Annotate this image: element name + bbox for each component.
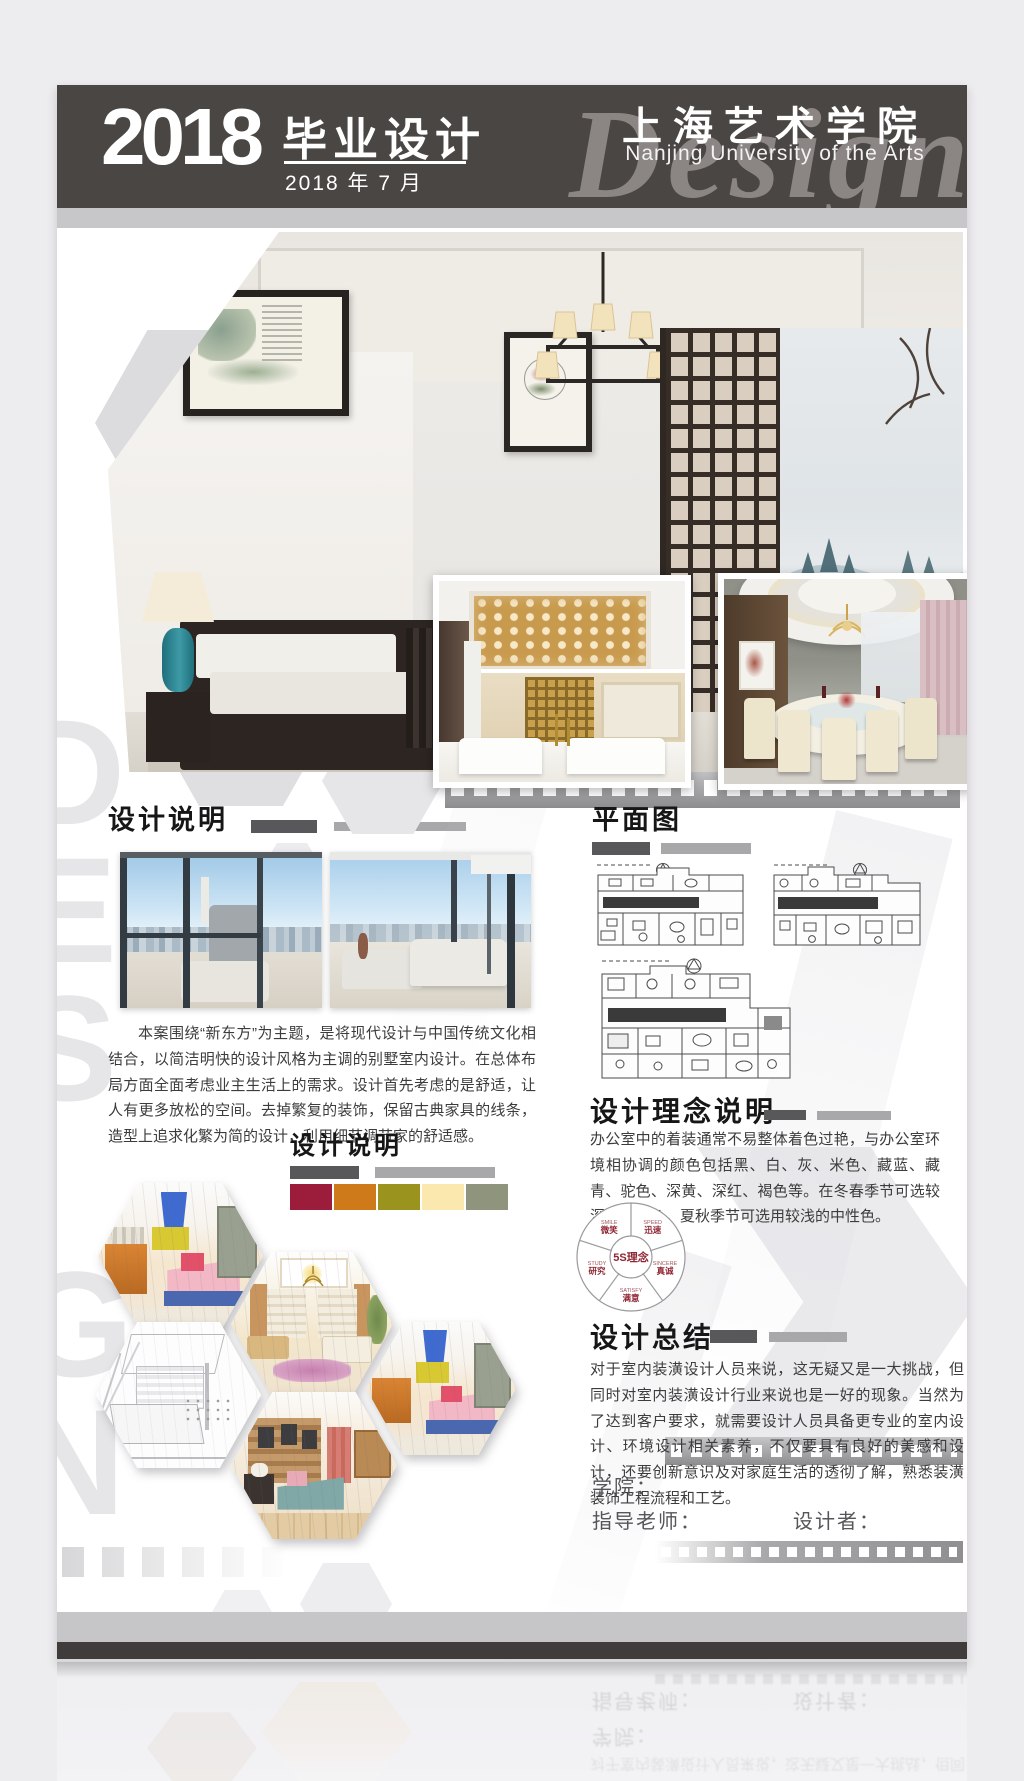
date-text: 2018 年 7 月 xyxy=(285,167,423,197)
title-bar-light xyxy=(817,1111,891,1120)
header-gray-strip xyxy=(57,208,967,228)
swatch-olive xyxy=(378,1184,420,1210)
svg-text:研究: 研究 xyxy=(588,1266,606,1276)
graduation-design-title: 毕业设计 xyxy=(282,103,486,168)
svg-text:真诚: 真诚 xyxy=(656,1266,674,1276)
window-view-photo-right xyxy=(330,852,531,1008)
dining-photo-round-table xyxy=(718,573,967,790)
svg-text:满意: 满意 xyxy=(622,1293,640,1303)
film-strip-bottom-right xyxy=(655,1541,963,1563)
poster-reflection: 指导老师： 设计者： 学院： 对于室内装潢设计人员来说，这无疑又是一大挑战，但同… xyxy=(57,1662,967,1781)
school-name-en: Nanjing University of the Arts xyxy=(590,142,960,166)
floor-plan-2 xyxy=(768,861,926,951)
title-bar-dark xyxy=(764,1110,806,1120)
floor-plan-1 xyxy=(593,861,749,951)
reflected-hexagon-sketch xyxy=(262,1682,412,1781)
year-text: 2018 xyxy=(101,91,259,183)
five-s-center-label: 5S理念 xyxy=(613,1250,649,1264)
title-bar-dark xyxy=(710,1330,757,1343)
header-divider-line xyxy=(284,161,466,164)
title-bar-dark xyxy=(251,820,317,833)
hexagon-sketch-bedroom-2 xyxy=(366,1322,516,1455)
section-title-design-summary: 设计总结 xyxy=(590,1316,714,1356)
teal-lamp xyxy=(132,572,222,772)
section-title-design-concept: 设计理念说明 xyxy=(590,1090,776,1130)
section-title-design-description-2: 设计说明 xyxy=(290,1126,402,1162)
svg-text:微笑: 微笑 xyxy=(600,1225,619,1235)
poster: DESIGN Design Design 2018 毕业设计 2018 年 7 … xyxy=(57,85,967,1662)
advisor-field-label: 指导老师： xyxy=(592,1505,702,1534)
title-bar-light xyxy=(769,1332,847,1342)
school-field-label: 学院： xyxy=(592,1471,658,1500)
dining-photo-honeycomb-ceiling xyxy=(433,575,691,788)
svg-text:迅速: 迅速 xyxy=(644,1225,662,1235)
five-s-diagram: 5S理念 SMILE 微笑 SPEED 迅速 SINCERE 真诚 SATISF… xyxy=(573,1199,689,1315)
swatch-orange xyxy=(334,1184,376,1210)
poster-canvas: DESIGN Design Design 2018 毕业设计 2018 年 7 … xyxy=(0,0,1024,1781)
chandelier xyxy=(528,252,678,432)
title-bar-dark xyxy=(290,1166,359,1179)
swatch-gray-green xyxy=(466,1184,508,1210)
window-view-photo-left xyxy=(120,852,322,1008)
bottom-edge-line xyxy=(57,1659,967,1662)
floor-plan-3 xyxy=(594,956,796,1084)
bottom-gray-band xyxy=(57,1612,967,1642)
swatch-dark-red xyxy=(290,1184,332,1210)
title-bar-light xyxy=(661,843,751,854)
section-title-floor-plan: 平面图 xyxy=(592,798,682,837)
swatch-cream xyxy=(422,1184,464,1210)
film-strip-bottom-left xyxy=(62,1547,302,1577)
title-bar-light xyxy=(375,1167,495,1178)
color-palette-swatches xyxy=(290,1184,520,1210)
designer-field-label: 设计者： xyxy=(793,1505,881,1534)
title-bar-dark xyxy=(592,842,650,855)
bottom-dark-band xyxy=(57,1642,967,1659)
